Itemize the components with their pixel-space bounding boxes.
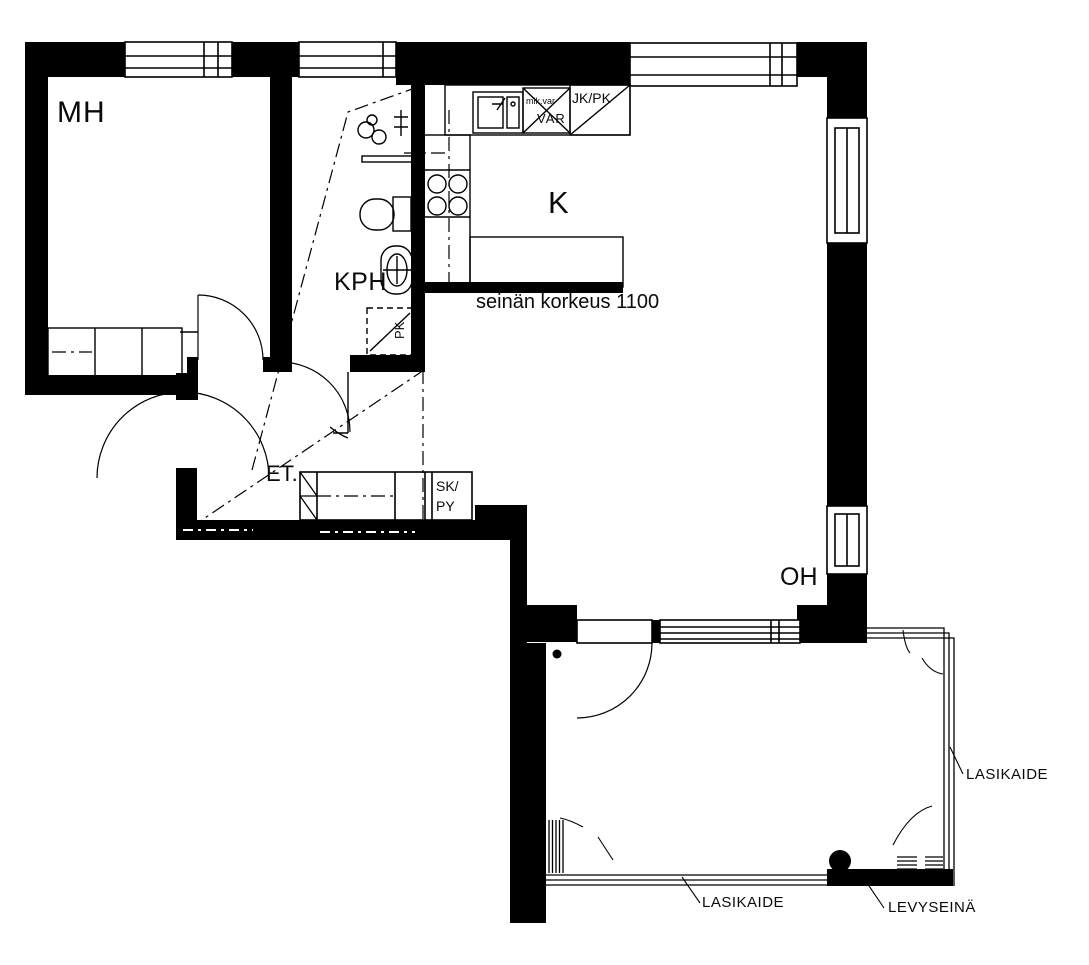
window-oh-right-lower-icon <box>827 506 867 574</box>
toilet-icon <box>360 197 411 231</box>
window-balcony-icon <box>660 620 800 643</box>
annotation-wall-height: seinän korkeus 1100 <box>476 292 659 313</box>
room-label-hallway: ET. <box>266 462 298 485</box>
balcony-door-frame <box>577 620 652 643</box>
room-label-kitchen: K <box>548 187 569 220</box>
label-fridge-freezer: JK/PK <box>572 91 611 106</box>
stove-icon <box>428 175 467 215</box>
floor-plan: MH KPH K ET. OH JK/PK mik.var VAR SK/ PY… <box>0 0 1089 965</box>
door-arc-mh <box>198 295 263 360</box>
railing-hatch-left <box>549 820 563 873</box>
door-arc-kph <box>280 362 350 432</box>
shower-icon <box>358 110 412 162</box>
balcony-column <box>829 850 851 872</box>
label-reservation: VAR <box>537 112 566 126</box>
door-arc-balcony <box>577 643 652 718</box>
balcony-railing <box>546 628 954 886</box>
room-label-living-room: OH <box>780 564 818 590</box>
window-mh-icon <box>125 42 232 77</box>
door-arc-entry <box>97 392 269 478</box>
kitchen-sink-icon <box>473 92 523 133</box>
wardrobe-icon <box>48 328 182 377</box>
railing-hatch-right <box>897 857 943 869</box>
annotation-glass-railing-right: LASIKAIDE <box>966 767 1048 783</box>
window-kph-icon <box>299 42 396 77</box>
window-oh-top-icon <box>630 43 797 86</box>
window-oh-right-upper-icon <box>827 118 867 243</box>
label-closets: SK/ PY <box>436 476 459 517</box>
kitchen-counter <box>424 85 630 287</box>
room-label-bathroom: KPH <box>334 269 387 295</box>
doorway-edge <box>180 332 348 438</box>
label-micro-reservation: mik.var <box>526 97 555 106</box>
annotation-panel-wall: LEVYSEINÄ <box>888 900 976 916</box>
annotation-glass-railing-bottom: LASIKAIDE <box>702 895 784 911</box>
exterior-walls <box>25 42 867 643</box>
window-symbols <box>125 42 867 643</box>
curve-marks <box>560 630 943 860</box>
balcony-dot-marker <box>553 650 562 659</box>
label-washer-reservation: PK <box>393 322 407 339</box>
room-label-bedroom: MH <box>57 97 106 129</box>
floor-plan-drawing <box>0 0 1089 965</box>
